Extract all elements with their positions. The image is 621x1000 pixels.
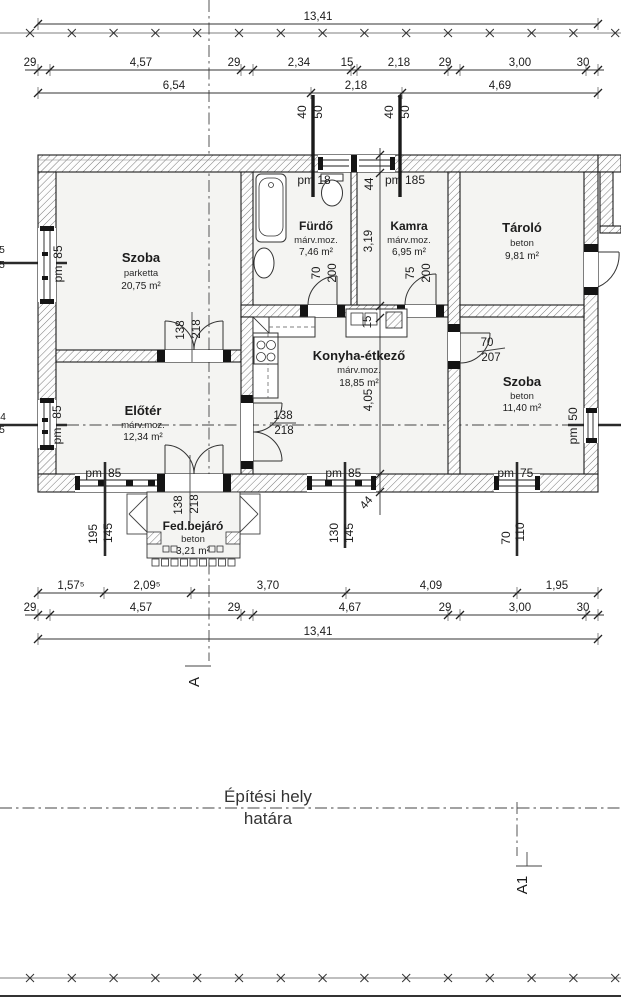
room-finish: márv.moz. (294, 235, 338, 246)
dim: 4,67 (339, 602, 361, 614)
porch-posts (152, 559, 235, 566)
room-area: 11,40 m² (503, 403, 542, 414)
door-height: 207 (481, 352, 500, 364)
dim: 29 (439, 602, 452, 614)
pm-value-left-upper: 85 (51, 245, 65, 259)
room-finish: beton (510, 238, 534, 249)
room-finish: beton (181, 534, 205, 545)
room-area: 9,81 m² (505, 251, 540, 262)
floor-plan-sheet: Szoba parketta 20,75 m² Fürdő márv.moz. … (0, 0, 621, 1000)
dim: 29 (24, 57, 37, 69)
room-name: Tároló (502, 220, 542, 235)
window-dim: 145 (101, 523, 115, 543)
duct-shaft (386, 312, 402, 328)
dim: 3,00 (509, 57, 531, 69)
pm-value: 85 (108, 466, 122, 480)
dim: 15 (341, 57, 354, 69)
edge-fragments: 5 5 4 5 (0, 245, 6, 436)
dim-wall-bottom: 44 (358, 494, 376, 512)
room-area: 18,85 m² (339, 378, 379, 389)
room-finish: márv.moz. (337, 365, 381, 376)
chimney-dim: 50 (398, 105, 412, 119)
door-height: 218 (191, 319, 203, 338)
room-name: Szoba (122, 250, 161, 265)
dim-konyha-depth: 4,05 (363, 389, 375, 411)
pm-prefix: pm (325, 466, 342, 480)
edge-fragment: 4 (0, 412, 6, 423)
room-area: 12,34 m² (123, 432, 163, 443)
dim-total-bottom: 13,41 (304, 626, 333, 638)
pm-value-right-szoba2: 50 (566, 407, 580, 421)
edge-fragment: 5 (0, 260, 5, 271)
pm-value: 85 (348, 466, 362, 480)
dim-furdo-depth: 3,19 (363, 230, 375, 252)
window-right-szoba2 (584, 408, 598, 443)
dim: 30 (577, 57, 590, 69)
dim: 3,00 (509, 602, 531, 614)
door-height: 218 (274, 425, 293, 437)
dim: 4,57 (130, 57, 152, 69)
window-dim: 110 (513, 522, 527, 541)
room-name: Kamra (390, 219, 428, 233)
window-dim: 130 (327, 523, 341, 543)
chimney-dim: 40 (382, 105, 396, 119)
room-area: 6,95 m² (392, 247, 427, 258)
dim: 1,95 (546, 580, 568, 592)
room-finish: márv.moz. (387, 235, 431, 246)
dim: 29 (228, 57, 241, 69)
dim-sink: 15 (362, 316, 374, 329)
window-left-upper (38, 226, 56, 304)
door-width: 138 (173, 495, 185, 514)
pm-label-top-kamra: pm 185 (385, 173, 425, 187)
dim: 30 (577, 602, 590, 614)
site-boundary: Építési hely határa (0, 787, 621, 828)
room-name: Előtér (125, 403, 162, 418)
room-finish: parketta (124, 268, 159, 279)
window-top-furdo (318, 155, 351, 172)
window-dim: 70 (499, 531, 513, 545)
pm-prefix-left-lower: pm (50, 428, 64, 445)
dim: 29 (439, 57, 452, 69)
steps-right (240, 494, 260, 534)
room-area: 7,46 m² (299, 247, 334, 258)
floor-plan-drawing: Szoba parketta 20,75 m² Fürdő márv.moz. … (0, 0, 621, 1000)
room-kamra: Kamra márv.moz. 6,95 m² (387, 219, 431, 258)
room-eloter: Előtér márv.moz. 12,34 m² (121, 403, 165, 443)
pm-prefix-left-upper: pm (51, 266, 65, 283)
top-dimensions: 13,41 29 4,57 29 2,34 15 2,18 29 3,00 30… (24, 11, 604, 93)
dim: 6,54 (163, 80, 186, 92)
door-width: 70 (481, 337, 494, 349)
section-marker-a1: A1 (514, 876, 531, 894)
steps-left (127, 494, 147, 534)
room-furdo: Fürdő márv.moz. 7,46 m² (294, 219, 338, 258)
door-width: 70 (311, 267, 323, 280)
door-width: 138 (175, 320, 187, 339)
room-finish: beton (510, 391, 534, 402)
pm-value: 75 (520, 466, 534, 480)
room-name: Szoba (503, 374, 542, 389)
dim: 29 (24, 602, 37, 614)
dim: 2,09⁵ (133, 580, 160, 592)
door-width: 75 (405, 267, 417, 280)
window-dim: 145 (342, 523, 356, 543)
room-name: Fürdő (299, 219, 333, 233)
dim: 4,09 (420, 580, 442, 592)
dim: 1,57⁵ (57, 580, 84, 592)
dim: 2,34 (288, 57, 311, 69)
edge-fragment: 5 (0, 425, 5, 436)
dim: 3,70 (257, 580, 279, 592)
door-height: 200 (421, 263, 433, 282)
dim: 2,18 (345, 80, 367, 92)
edge-fragment: 5 (0, 245, 5, 256)
pm-prefix: pm (497, 466, 514, 480)
door-height: 200 (327, 263, 339, 282)
pm-value-left-lower: 85 (50, 405, 64, 419)
room-area: 20,75 m² (121, 281, 161, 292)
door-tarolo-exterior (584, 244, 619, 295)
room-name: Fed.bejáró (163, 519, 224, 533)
room-name: Konyha-étkező (313, 348, 406, 363)
dim: 2,18 (388, 57, 410, 69)
chimney-dim: 50 (311, 105, 325, 119)
room-finish: márv.moz. (121, 420, 165, 431)
dim: 4,57 (130, 602, 152, 614)
chimney-dim: 40 (295, 105, 309, 119)
pm-prefix-right-szoba2: pm (566, 428, 580, 445)
section-markers: A A1 (185, 666, 542, 894)
bathroom-sink (254, 248, 274, 278)
room-szoba1: Szoba parketta 20,75 m² (121, 250, 161, 292)
section-marker-a: A (186, 677, 203, 687)
door-height: 218 (189, 494, 201, 513)
dim: 29 (228, 602, 241, 614)
dim-total-top: 13,41 (304, 11, 333, 23)
window-dim: 195 (86, 524, 100, 544)
room-area: 3,21 m² (176, 546, 211, 557)
dim: 4,69 (489, 80, 511, 92)
door-width: 138 (273, 410, 292, 422)
pm-prefix: pm (85, 466, 102, 480)
window-top-kamra (351, 155, 395, 172)
site-boundary-label: határa (244, 809, 293, 828)
dim-wall-top: 44 (364, 177, 376, 190)
site-boundary-label: Építési hely (224, 787, 312, 806)
